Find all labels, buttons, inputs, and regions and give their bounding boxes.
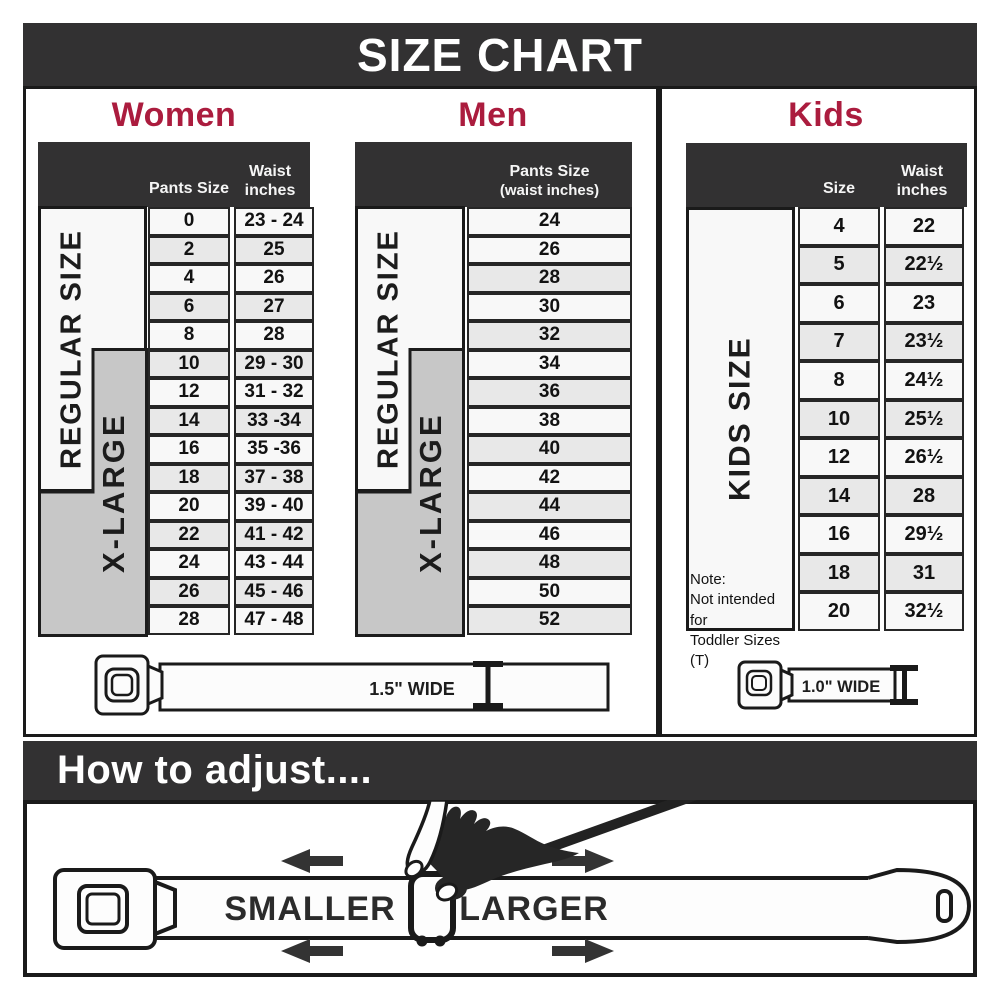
table-cell: 28: [148, 606, 230, 635]
table-cell: 24: [467, 207, 632, 236]
table-row: 2645 - 46: [148, 578, 314, 607]
table-cell: 23: [884, 284, 964, 323]
table-cell: 46: [467, 521, 632, 550]
table-row: 2443 - 44: [148, 549, 314, 578]
arrow-right-icon: [552, 939, 614, 963]
table-cell: 22: [884, 207, 964, 246]
table-cell: 29½: [884, 515, 964, 554]
table-row: 34: [467, 350, 632, 379]
women-section-heading: Women: [74, 96, 274, 135]
table-cell: 22½: [884, 246, 964, 285]
larger-label: LARGER: [459, 890, 609, 928]
kids-col1-header: Size: [798, 180, 880, 199]
table-cell: 8: [148, 321, 230, 350]
kids-table-header: Size Waist inches: [686, 143, 967, 207]
table-row: 1837 - 38: [148, 464, 314, 493]
table-cell: 18: [798, 554, 880, 593]
table-cell: 45 - 46: [234, 578, 314, 607]
men-col-header: Pants Size (waist inches): [467, 163, 632, 201]
kids-table-rows: 422522½623723½824½1025½1226½14281629½183…: [798, 207, 964, 631]
table-row: 2241 - 42: [148, 521, 314, 550]
table-cell: 47 - 48: [234, 606, 314, 635]
table-row: 1428: [798, 477, 964, 516]
seatbelt-buckle-icon: [739, 662, 792, 708]
table-cell: 30: [467, 293, 632, 322]
page-title: SIZE CHART: [357, 28, 643, 82]
table-cell: 36: [467, 378, 632, 407]
table-cell: 16: [148, 435, 230, 464]
arrow-left-icon: [281, 849, 343, 873]
table-cell: 12: [798, 438, 880, 477]
seatbelt-buckle-icon: [96, 656, 162, 714]
table-cell: 28: [234, 321, 314, 350]
table-cell: 26: [234, 264, 314, 293]
table-row: 46: [467, 521, 632, 550]
size-chart-infographic: SIZE CHART Women Men Kids Pants Size Wai…: [0, 0, 1000, 1000]
table-cell: 31: [884, 554, 964, 593]
table-cell: 32: [467, 321, 632, 350]
seatbelt-buckle-icon: [55, 870, 175, 948]
table-cell: 38: [467, 407, 632, 436]
table-row: 1231 - 32: [148, 378, 314, 407]
kids-belt-illustration: 1.0" WIDE: [735, 655, 925, 710]
table-cell: 5: [798, 246, 880, 285]
table-cell: 44: [467, 492, 632, 521]
table-row: 26: [467, 236, 632, 265]
belt-tip-icon: [868, 870, 969, 942]
how-to-adjust-banner: How to adjust....: [23, 741, 977, 800]
table-cell: 42: [467, 464, 632, 493]
table-cell: 25½: [884, 400, 964, 439]
table-cell: 37 - 38: [234, 464, 314, 493]
table-row: 522½: [798, 246, 964, 285]
men-kids-divider: [656, 86, 662, 737]
men-table-rows: 242628303234363840424446485052: [467, 207, 632, 635]
table-cell: 28: [467, 264, 632, 293]
table-row: 627: [148, 293, 314, 322]
adult-belt-illustration: 1.5" WIDE: [90, 650, 620, 720]
kids-size-label: KIDS SIZE: [686, 207, 795, 631]
table-row: 1029 - 30: [148, 350, 314, 379]
table-cell: 28: [884, 477, 964, 516]
table-row: 426: [148, 264, 314, 293]
table-cell: 23 - 24: [234, 207, 314, 236]
women-col2-header: Waist inches: [230, 163, 310, 201]
table-cell: 4: [798, 207, 880, 246]
table-row: 422: [798, 207, 964, 246]
table-row: 623: [798, 284, 964, 323]
table-cell: 20: [148, 492, 230, 521]
table-cell: 50: [467, 578, 632, 607]
table-row: 824½: [798, 361, 964, 400]
table-cell: 33 -34: [234, 407, 314, 436]
kids-section-heading: Kids: [726, 96, 926, 135]
table-cell: 24½: [884, 361, 964, 400]
table-cell: 16: [798, 515, 880, 554]
table-row: 1831: [798, 554, 964, 593]
table-row: 48: [467, 549, 632, 578]
table-cell: 26: [148, 578, 230, 607]
table-cell: 7: [798, 323, 880, 362]
table-row: 40: [467, 435, 632, 464]
kids-belt-width-label: 1.0" WIDE: [802, 678, 880, 696]
men-xlarge-label: X-LARGE: [402, 352, 460, 633]
women-col1-header: Pants Size: [148, 180, 230, 199]
table-cell: 12: [148, 378, 230, 407]
table-row: 32: [467, 321, 632, 350]
table-row: 023 - 24: [148, 207, 314, 236]
smaller-label: SMALLER: [224, 890, 395, 928]
table-row: 2032½: [798, 592, 964, 631]
table-row: 42: [467, 464, 632, 493]
table-row: 828: [148, 321, 314, 350]
men-table-header: Pants Size (waist inches): [355, 142, 632, 207]
table-cell: 32½: [884, 592, 964, 631]
table-cell: 2: [148, 236, 230, 265]
table-cell: 4: [148, 264, 230, 293]
table-row: 1025½: [798, 400, 964, 439]
table-row: 1629½: [798, 515, 964, 554]
adult-belt-width-label: 1.5" WIDE: [369, 679, 455, 699]
table-cell: 0: [148, 207, 230, 236]
table-cell: 14: [798, 477, 880, 516]
women-table-header: Pants Size Waist inches: [38, 142, 310, 207]
table-cell: 31 - 32: [234, 378, 314, 407]
table-row: 24: [467, 207, 632, 236]
table-row: 1226½: [798, 438, 964, 477]
table-cell: 34: [467, 350, 632, 379]
table-cell: 48: [467, 549, 632, 578]
table-cell: 25: [234, 236, 314, 265]
table-cell: 27: [234, 293, 314, 322]
table-cell: 18: [148, 464, 230, 493]
adjust-illustration: SMALLER LARGER: [23, 800, 977, 977]
table-row: 1433 -34: [148, 407, 314, 436]
table-row: 52: [467, 606, 632, 635]
how-to-adjust-heading: How to adjust....: [23, 748, 372, 793]
table-cell: 6: [798, 284, 880, 323]
table-row: 723½: [798, 323, 964, 362]
table-cell: 39 - 40: [234, 492, 314, 521]
table-cell: 41 - 42: [234, 521, 314, 550]
table-row: 2847 - 48: [148, 606, 314, 635]
table-row: 50: [467, 578, 632, 607]
table-row: 1635 -36: [148, 435, 314, 464]
table-cell: 10: [798, 400, 880, 439]
arrow-left-icon: [281, 939, 343, 963]
table-cell: 8: [798, 361, 880, 400]
women-xlarge-label: X-LARGE: [85, 352, 143, 633]
table-cell: 10: [148, 350, 230, 379]
table-cell: 20: [798, 592, 880, 631]
table-row: 28: [467, 264, 632, 293]
table-row: 38: [467, 407, 632, 436]
table-cell: 26½: [884, 438, 964, 477]
table-cell: 52: [467, 606, 632, 635]
table-cell: 35 -36: [234, 435, 314, 464]
table-cell: 26: [467, 236, 632, 265]
table-cell: 43 - 44: [234, 549, 314, 578]
table-cell: 6: [148, 293, 230, 322]
table-row: 2039 - 40: [148, 492, 314, 521]
size-chart-banner: SIZE CHART: [23, 23, 977, 86]
men-section-heading: Men: [393, 96, 593, 135]
table-row: 225: [148, 236, 314, 265]
table-cell: 23½: [884, 323, 964, 362]
table-cell: 40: [467, 435, 632, 464]
table-row: 30: [467, 293, 632, 322]
table-cell: 24: [148, 549, 230, 578]
women-table-rows: 023 - 242254266278281029 - 301231 - 3214…: [148, 207, 314, 635]
table-row: 36: [467, 378, 632, 407]
table-cell: 22: [148, 521, 230, 550]
table-cell: 29 - 30: [234, 350, 314, 379]
table-cell: 14: [148, 407, 230, 436]
table-row: 44: [467, 492, 632, 521]
kids-col2-header: Waist inches: [882, 163, 962, 201]
